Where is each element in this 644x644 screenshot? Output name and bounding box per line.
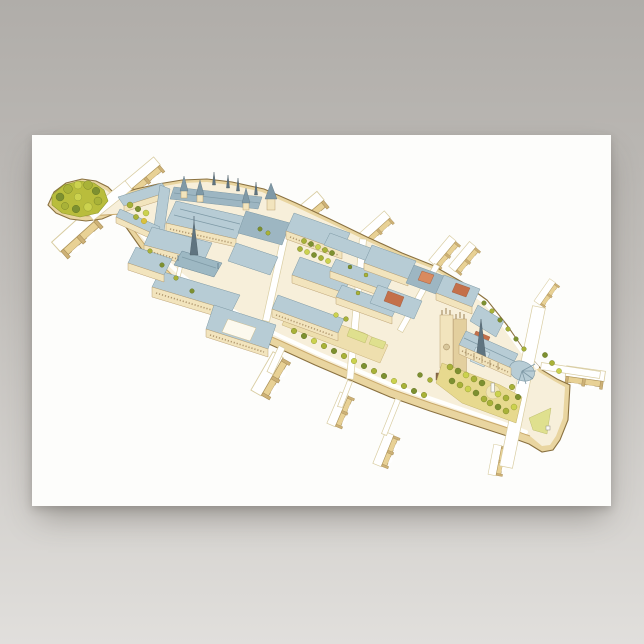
studio-background xyxy=(0,0,644,644)
street-to-pont-au-double xyxy=(382,399,401,436)
deportation-memorial xyxy=(546,426,550,430)
poster-print xyxy=(32,135,611,506)
bridge-arm-pont-saint-louis xyxy=(534,279,561,309)
rose-window xyxy=(444,344,450,350)
bridge-arm-pont-au-double xyxy=(373,432,402,470)
illustration-canvas xyxy=(32,135,611,506)
bridge-arm-pont-saint-michel xyxy=(251,352,292,401)
garden-monument xyxy=(491,383,495,392)
